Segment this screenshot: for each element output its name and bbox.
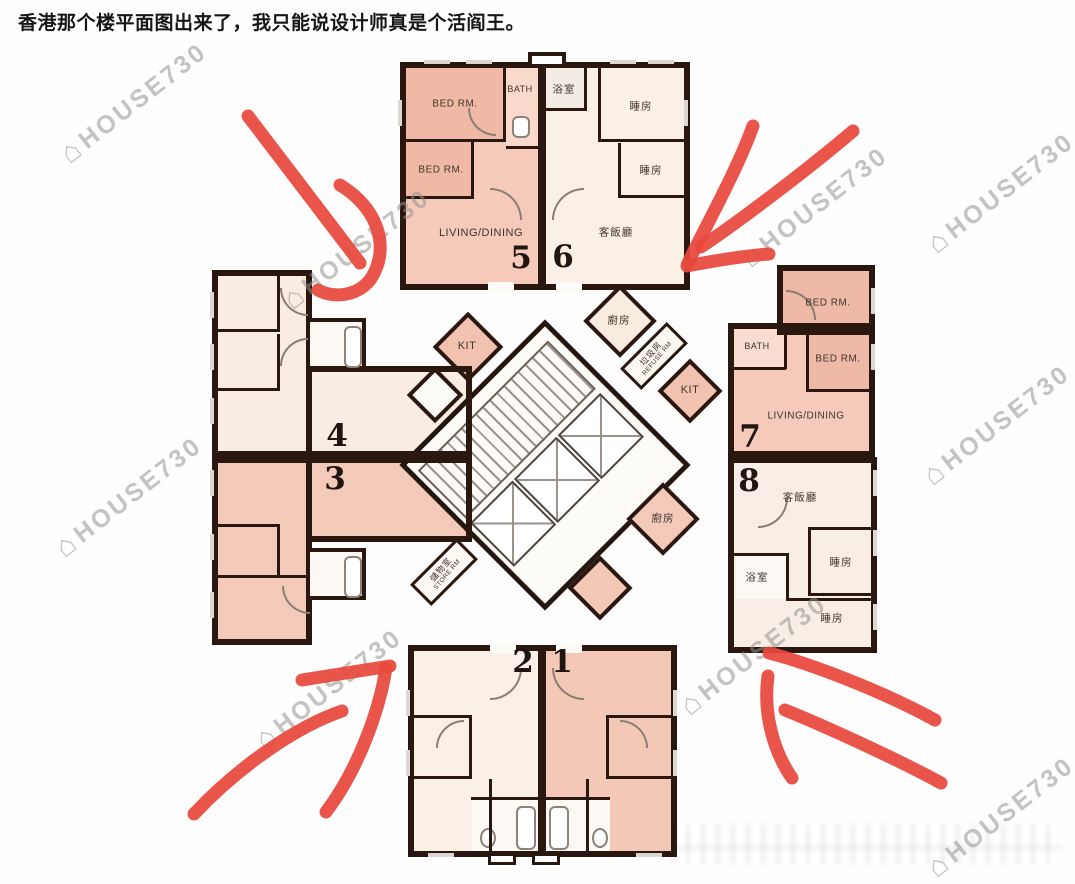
wall — [734, 367, 786, 370]
wall — [806, 332, 809, 391]
unit-number-8: 8 — [738, 463, 760, 499]
room-label: 睡房 — [830, 555, 853, 570]
wall — [469, 715, 472, 779]
window-mark — [428, 853, 454, 857]
window-mark — [210, 592, 214, 618]
door-opening — [556, 282, 582, 292]
room-label: 睡房 — [640, 163, 663, 178]
door-opening — [488, 282, 514, 292]
wall — [606, 715, 609, 779]
annotation-arrow-bottom-left — [194, 666, 390, 814]
window-mark — [210, 344, 214, 370]
window-mark — [210, 398, 214, 424]
annotation-arrow-bottom-right — [767, 653, 941, 783]
room-label: BATH — [744, 341, 769, 351]
wall — [277, 334, 280, 391]
house730-watermark: ⌂HOUSE730 — [916, 357, 1075, 493]
window-mark — [873, 470, 877, 496]
window-mark — [871, 344, 875, 370]
wall — [218, 524, 280, 527]
wall — [546, 797, 610, 800]
window-mark — [210, 470, 214, 496]
wall — [277, 276, 280, 332]
bathtub — [516, 806, 536, 850]
room-label: BATH — [507, 84, 532, 94]
window-mark — [406, 690, 410, 716]
wall — [277, 524, 280, 577]
window-mark — [210, 292, 214, 318]
window-mark — [673, 750, 677, 776]
wall — [618, 143, 621, 198]
wall — [598, 68, 601, 142]
wall — [414, 715, 472, 718]
room-label: 廚房 — [608, 313, 631, 328]
window-mark — [424, 60, 450, 64]
window-mark — [684, 100, 688, 126]
wall — [471, 142, 474, 199]
unit-number-6: 6 — [552, 239, 574, 275]
unit-number-5: 5 — [510, 240, 532, 276]
wall — [489, 779, 492, 851]
wall — [598, 139, 684, 142]
room-label: KIT — [681, 384, 700, 396]
wall — [784, 329, 787, 369]
wall — [538, 651, 546, 851]
wall — [786, 553, 789, 601]
bathtub — [344, 556, 362, 598]
room-label: BED RM. — [432, 99, 477, 110]
window-mark — [636, 853, 662, 857]
wall — [506, 146, 540, 149]
unit-number-4: 4 — [326, 418, 348, 454]
screenshot: 香港那个楼平面图出来了，我只能说设计师真是个活阎王。 — [0, 0, 1075, 884]
bathtub — [344, 326, 362, 368]
window-mark — [648, 60, 674, 64]
unit-number-3: 3 — [324, 461, 346, 497]
wall — [586, 779, 589, 851]
wall — [540, 108, 586, 111]
window-mark — [873, 530, 877, 556]
wall — [414, 776, 472, 779]
window-mark — [406, 750, 410, 776]
window-mark — [871, 288, 875, 314]
room-label: BED RM. — [418, 165, 463, 176]
window-mark — [610, 60, 636, 64]
caption-text: 香港那个楼平面图出来了，我只能说设计师真是个活阎王。 — [18, 8, 525, 35]
room-label: BED RM. — [805, 298, 850, 309]
room-label: 睡房 — [630, 99, 653, 114]
house730-watermark: ⌂HOUSE730 — [920, 125, 1075, 261]
wall — [406, 139, 505, 142]
wall — [806, 389, 869, 392]
room-label: 客飯廳 — [783, 490, 818, 505]
wall — [218, 575, 308, 578]
room-label: 廚房 — [652, 511, 675, 526]
room-label: LIVING/DINING — [439, 227, 523, 239]
unit-3-outline — [212, 457, 312, 645]
wall — [608, 715, 671, 718]
wc-fixture — [480, 828, 496, 848]
house730-watermark: ⌂HOUSE730 — [734, 139, 895, 275]
wall — [471, 797, 538, 800]
window-mark — [398, 100, 402, 126]
wall — [218, 388, 280, 391]
room-label: 客飯廳 — [599, 225, 634, 240]
room-label: 浴室 — [553, 82, 576, 97]
room-label: 浴室 — [746, 570, 769, 585]
bottom-duct — [488, 853, 516, 865]
room-label: BED RM. — [815, 354, 860, 365]
unit-number-1: 1 — [551, 644, 573, 680]
wall — [808, 527, 871, 530]
window-mark — [466, 60, 492, 64]
unit-number-2: 2 — [512, 644, 534, 680]
wall — [218, 329, 280, 332]
house730-watermark: ⌂HOUSE730 — [48, 429, 209, 565]
bottom-duct — [532, 853, 560, 865]
wall — [503, 68, 506, 142]
wall — [808, 527, 811, 595]
wc-fixture — [512, 116, 530, 138]
house730-watermark: ⌂HOUSE730 — [53, 35, 214, 171]
wall — [734, 553, 788, 556]
window-mark — [210, 534, 214, 560]
room-label: KIT — [458, 340, 477, 352]
wall — [618, 195, 684, 198]
wall — [584, 68, 587, 111]
wc-fixture — [592, 828, 608, 848]
wall — [538, 68, 546, 284]
unit-number-7: 7 — [739, 419, 761, 455]
bathtub — [549, 806, 569, 850]
window-mark — [873, 604, 877, 630]
wall — [608, 776, 671, 779]
room-label: LIVING/DINING — [767, 411, 844, 422]
top-duct — [528, 52, 566, 68]
